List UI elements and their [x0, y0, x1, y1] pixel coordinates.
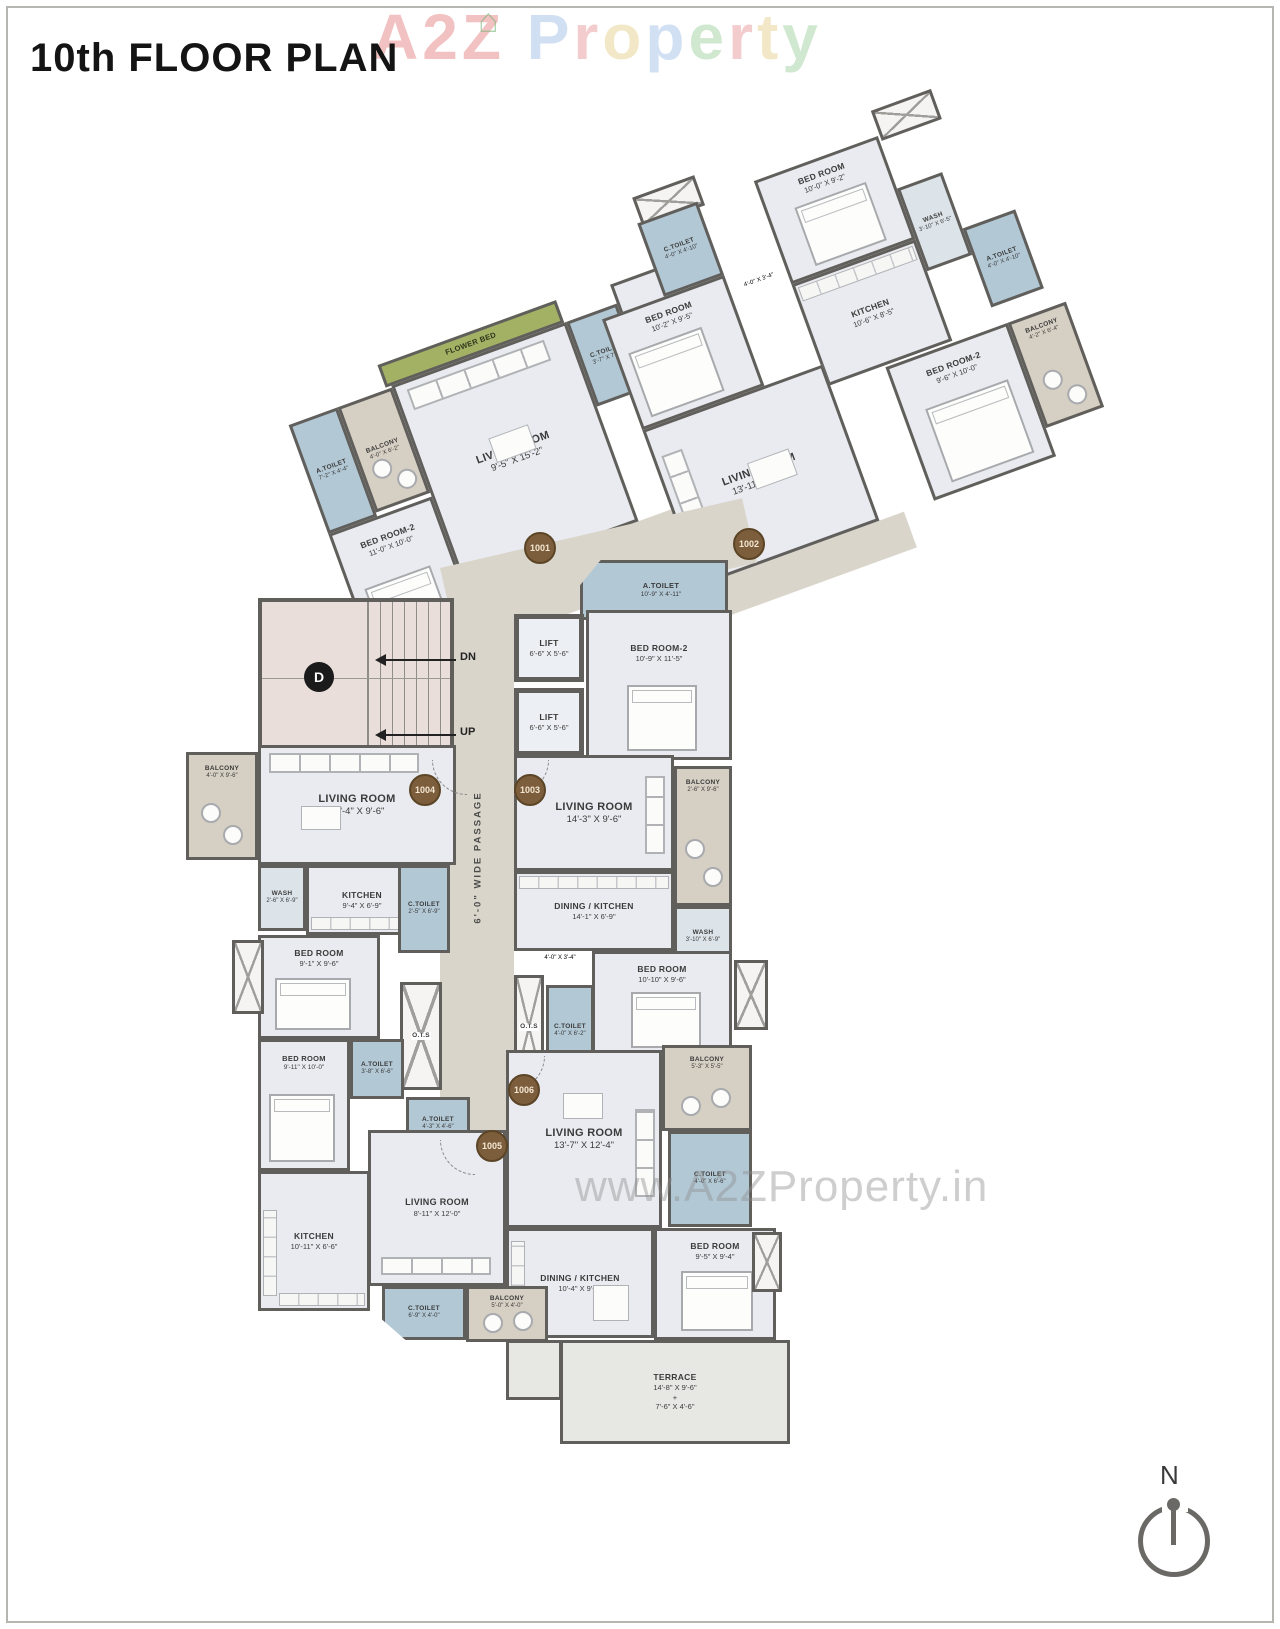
balcony-chair — [483, 1313, 503, 1333]
room-label: C.TOILET — [408, 1305, 440, 1313]
lift-1: LIFT 6'-6" X 5'-6" — [514, 614, 584, 682]
room-dims: 7'-6" X 4'-6" — [655, 1402, 694, 1411]
stair-up-label: UP — [460, 726, 475, 738]
balcony-chair — [681, 1096, 701, 1116]
room-terrace-1006: TERRACE 14'-8" X 9'-6" + 7'-6" X 4'-6" — [560, 1340, 790, 1444]
room-dims: 9'-4" X 6'-9" — [342, 901, 381, 910]
bed — [627, 685, 697, 751]
bed — [269, 1094, 335, 1162]
room-c-toilet-1004: C.TOILET 2'-5" X 6'-9" — [398, 865, 450, 953]
room-dims: 3'-8" X 6'-6" — [361, 1069, 392, 1077]
room-label: DINING / KITCHEN — [554, 901, 633, 912]
room-label: BALCONY — [690, 1056, 724, 1064]
balcony-chair — [1064, 382, 1090, 408]
duct-shaft — [734, 960, 768, 1030]
room-a-toilet-shared-1005: A.TOILET 3'-8" X 6'-6" — [350, 1039, 404, 1099]
stair-midline — [262, 678, 450, 679]
room-dims: 4'-0" X 9'-6" — [206, 773, 237, 781]
room-dims: 10'-9" X 11'-5" — [636, 654, 683, 663]
watermark-letter: 2 — [422, 1, 462, 73]
room-dims: 14'-8" X 9'-6" — [653, 1383, 696, 1392]
room-label: KITCHEN — [294, 1231, 334, 1242]
room-balcony-1005: BALCONY 5'-0" X 4'-0" — [466, 1286, 548, 1342]
room-dims: 8'-11" X 12'-0" — [414, 1209, 461, 1218]
balcony-chair — [201, 803, 221, 823]
balcony-chair — [703, 867, 723, 887]
room-label: KITCHEN — [342, 890, 382, 901]
room-dims: 6'-6" X 5'-6" — [529, 649, 568, 658]
room-dims: 6'-6" X 5'-6" — [529, 723, 568, 732]
floor-plan-canvas: A2Z Property ⌂ 10th FLOOR PLAN www.A2ZPr… — [0, 0, 1280, 1629]
dining-table — [593, 1285, 629, 1321]
room-dims: 9'-5" X 9'-4" — [695, 1252, 734, 1261]
kitchen-counter — [279, 1293, 365, 1306]
ots-label: O.T.S — [519, 1023, 539, 1031]
room-bedroom-1005: BED ROOM 9'-11" X 10'-0" — [258, 1039, 350, 1171]
watermark-letter: y — [782, 1, 822, 73]
balcony-chair — [685, 839, 705, 859]
stair-dn-label: DN — [460, 651, 476, 663]
room-balcony-1003: BALCONY 2'-6" X 9'-6" — [674, 766, 732, 906]
room-dims: 6'-9" X 4'-0" — [408, 1313, 439, 1321]
balcony-chair — [394, 466, 420, 492]
room-dims: 13'-7" X 12'-4" — [554, 1140, 614, 1152]
center-table — [301, 806, 341, 830]
compass-needle-dot — [1167, 1498, 1180, 1511]
room-label: DINING / KITCHEN — [540, 1273, 619, 1284]
room-label: BED ROOM-2 — [630, 643, 687, 654]
room-c-toilet-1005: C.TOILET 6'-9" X 4'-0" — [382, 1286, 466, 1340]
balcony-chair — [223, 825, 243, 845]
compass-needle — [1171, 1505, 1176, 1545]
room-dims: 14'-3" X 9'-6" — [567, 814, 622, 826]
terrace-step — [506, 1340, 562, 1400]
room-kitchen-1005: KITCHEN 10'-11" X 6'-6" — [258, 1171, 370, 1311]
room-dims: 2'-6" X 9'-6" — [687, 787, 718, 795]
room-label: LIVING ROOM — [405, 1197, 469, 1209]
room-dims: 4'-0" X 3'-4" — [731, 268, 788, 295]
sofa — [381, 1257, 491, 1275]
watermark-letter: e — [688, 1, 728, 73]
room-dims: 9'-11" X 10'-0" — [284, 1064, 325, 1072]
bed — [275, 978, 351, 1030]
room-dims: 2'-5" X 6'-9" — [408, 909, 439, 917]
bed — [628, 327, 725, 418]
room-dims: 5'-0" X 4'-0" — [491, 1303, 522, 1311]
room-balcony-1004: BALCONY 4'-0" X 9'-6" — [186, 752, 258, 860]
ots-shaft-a: O.T.S — [400, 982, 442, 1090]
room-label: BED ROOM — [282, 1054, 326, 1064]
bed — [925, 379, 1034, 482]
house-icon: ⌂ — [478, 2, 499, 41]
center-table — [747, 448, 798, 489]
room-label: BALCONY — [205, 765, 239, 773]
watermark-a2z-property: A2Z Property — [372, 0, 822, 74]
unit-badge-1004: 1004 — [409, 774, 441, 806]
stair-up-arrow — [386, 734, 456, 736]
compass-north-label: N — [1160, 1460, 1179, 1491]
room-label: LIFT — [539, 638, 558, 649]
room-dims: 2'-6" X 6'-9" — [266, 898, 297, 906]
room-label: TERRACE — [653, 1372, 696, 1383]
balcony-chair — [513, 1311, 533, 1331]
stair-dn-arrow — [386, 659, 456, 661]
room-label: BED ROOM — [690, 1241, 739, 1252]
watermark-letter: t — [757, 1, 782, 73]
room-label: A.TOILET — [361, 1061, 393, 1069]
room-bedroom-1003: BED ROOM 10'-10" X 9'-6" — [592, 951, 732, 1057]
unit-badge-1006: 1006 — [508, 1074, 540, 1106]
room-dims: 10'-11" X 6'-6" — [291, 1242, 338, 1251]
watermark-letter: P — [527, 1, 574, 73]
room-dining-kitchen-1003: DINING / KITCHEN 14'-1" X 6'-9" — [514, 871, 674, 951]
unit-badge-1005: 1005 — [476, 1130, 508, 1162]
passage-main-label: 6'-0" WIDE PASSAGE — [473, 778, 484, 938]
unit-badge-1001: 1001 — [524, 532, 556, 564]
room-label: A.TOILET — [643, 581, 679, 591]
watermark-url: www.A2ZProperty.in — [575, 1162, 988, 1212]
duct-shaft — [232, 940, 264, 1014]
unit-badge-1002: 1002 — [733, 528, 765, 560]
room-dims: 9'-1" X 9'-6" — [299, 959, 338, 968]
room-dims: 5'-3" X 5'-5" — [691, 1064, 722, 1072]
room-label: C.TOILET — [408, 901, 440, 909]
room-label: BED ROOM — [637, 964, 686, 975]
room-label: WASH — [693, 929, 714, 937]
sofa — [645, 776, 665, 854]
balcony-chair — [1040, 367, 1066, 393]
room-bedroom2-1003: BED ROOM-2 10'-9" X 11'-5" — [586, 610, 732, 760]
watermark-letter: r — [728, 1, 757, 73]
room-wash-1004: WASH 2'-6" X 6'-9" — [258, 865, 306, 931]
room-label: C.TOILET — [554, 1023, 586, 1031]
room-bedroom-1004: BED ROOM 9'-1" X 9'-6" — [258, 935, 380, 1039]
room-label: LIVING ROOM — [545, 1126, 622, 1140]
bed — [681, 1271, 753, 1331]
unit-badge-1003: 1003 — [514, 774, 546, 806]
watermark-letter — [505, 1, 527, 73]
room-a-toilet-1002: A.TOILET 4'-0" X 4'-10" — [963, 209, 1044, 307]
room-balcony-1006: BALCONY 5'-3" X 5'-5" — [662, 1045, 752, 1131]
watermark-letter: p — [645, 1, 688, 73]
stair-block-label: D — [304, 662, 334, 692]
room-dims: 14'-1" X 6'-9" — [572, 912, 615, 921]
ots-label: O.T.S — [411, 1032, 431, 1040]
kitchen-counter — [519, 876, 669, 889]
room-label: LIFT — [539, 712, 558, 723]
room-label: BALCONY — [490, 1295, 524, 1303]
balcony-chair — [711, 1088, 731, 1108]
corridor-dims-1003: 4'-0" X 3'-4" — [528, 955, 592, 963]
lift-2: LIFT 6'-6" X 5'-6" — [514, 688, 584, 756]
page-title: 10th FLOOR PLAN — [30, 36, 398, 81]
duct-shaft — [752, 1232, 782, 1292]
watermark-letter: o — [602, 1, 645, 73]
bed — [631, 992, 701, 1048]
room-label: LIVING ROOM — [318, 792, 395, 806]
room-label: WASH — [272, 890, 293, 898]
room-dims: 4'-0" X 3'-4" — [528, 955, 592, 963]
room-dims: 3'-10" X 6'-9" — [686, 937, 721, 945]
room-label: LIVING ROOM — [555, 800, 632, 814]
room-dims: 10'-10" X 9'-6" — [638, 975, 685, 984]
terrace-plus: + — [673, 1393, 677, 1402]
corridor-dims-1002: 4'-0" X 3'-4" — [731, 268, 788, 295]
duct-shaft — [871, 89, 942, 141]
kitchen-counter — [263, 1210, 277, 1296]
center-table — [563, 1093, 603, 1119]
room-label: BALCONY — [686, 779, 720, 787]
room-label: BED ROOM — [294, 948, 343, 959]
room-dims: 4'-0" X 6'-2" — [554, 1031, 585, 1039]
sofa — [269, 753, 419, 773]
watermark-letter: r — [573, 1, 602, 73]
room-dims: 10'-9" X 4'-11" — [641, 591, 682, 599]
room-label: A.TOILET — [422, 1116, 454, 1124]
